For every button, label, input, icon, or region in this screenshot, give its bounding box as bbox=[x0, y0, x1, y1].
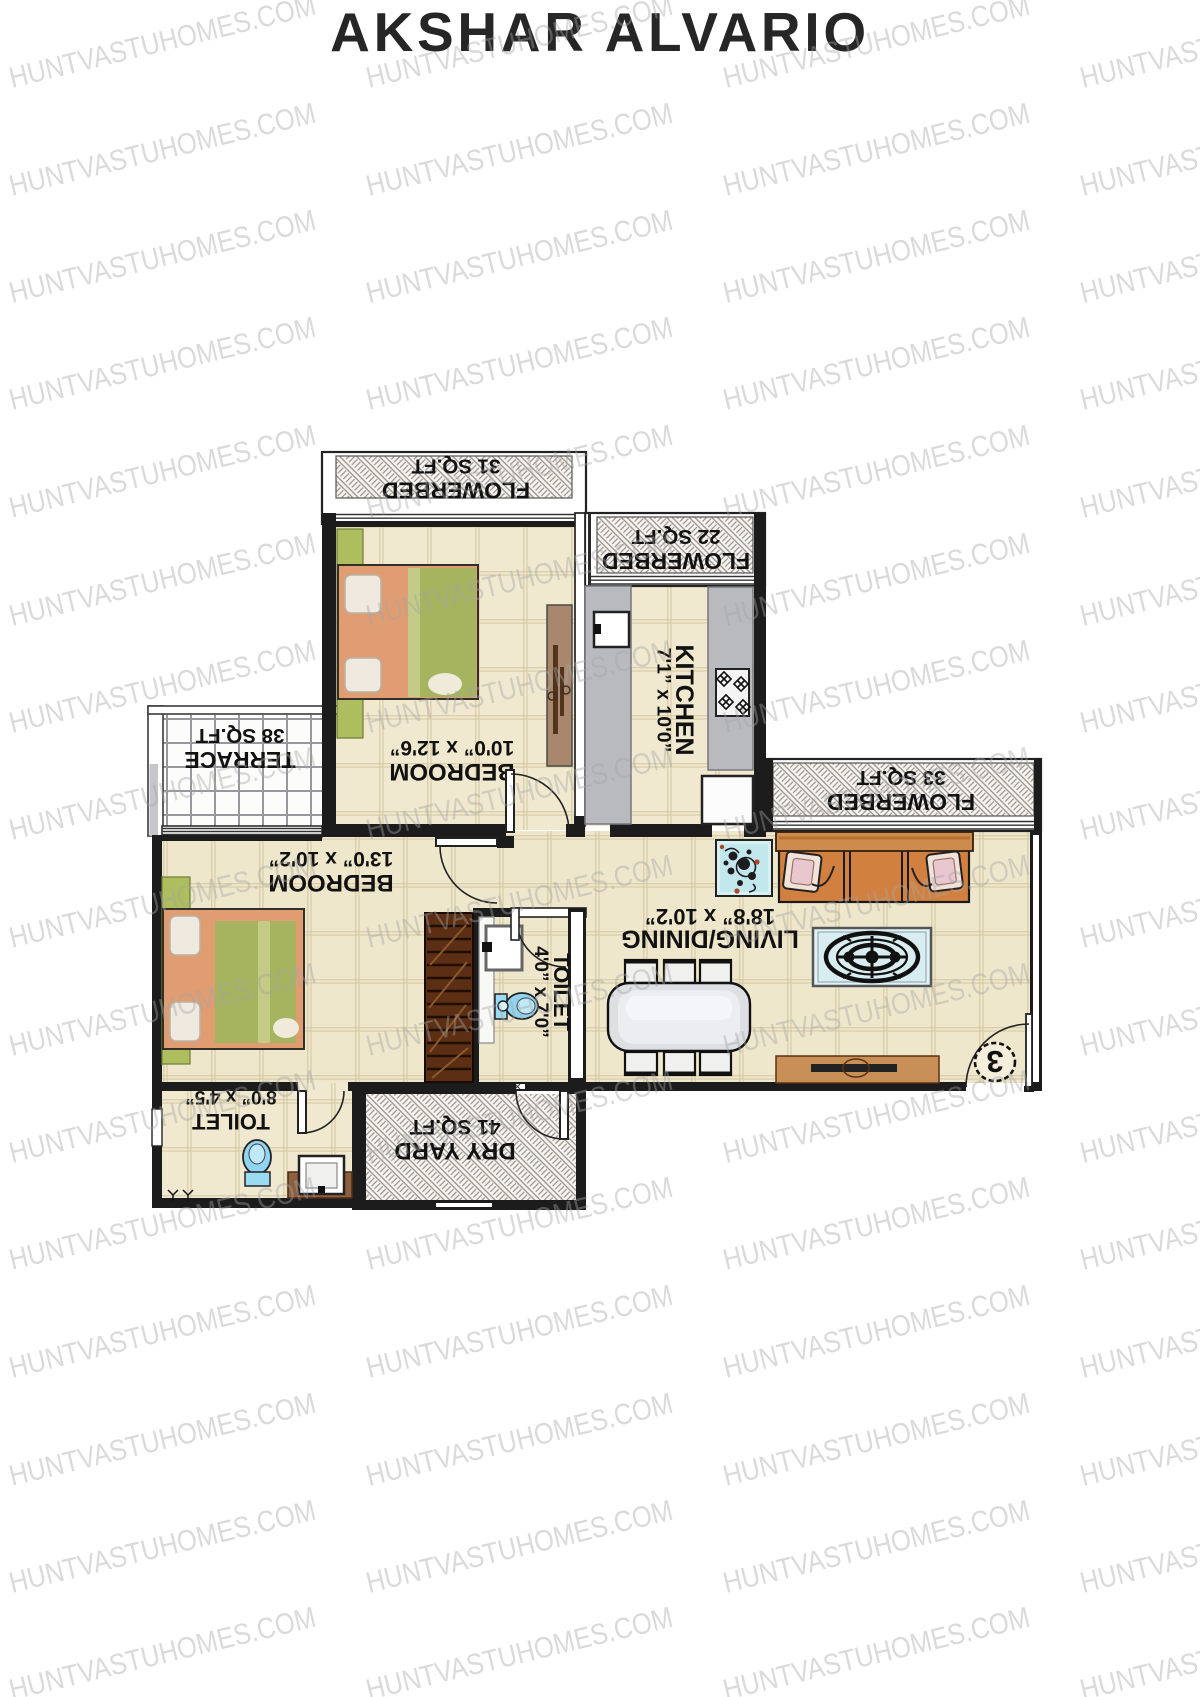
svg-text:38 SQ.FT: 38 SQ.FT bbox=[195, 724, 284, 747]
svg-text:10'0” x 12'6”: 10'0” x 12'6” bbox=[390, 736, 514, 759]
